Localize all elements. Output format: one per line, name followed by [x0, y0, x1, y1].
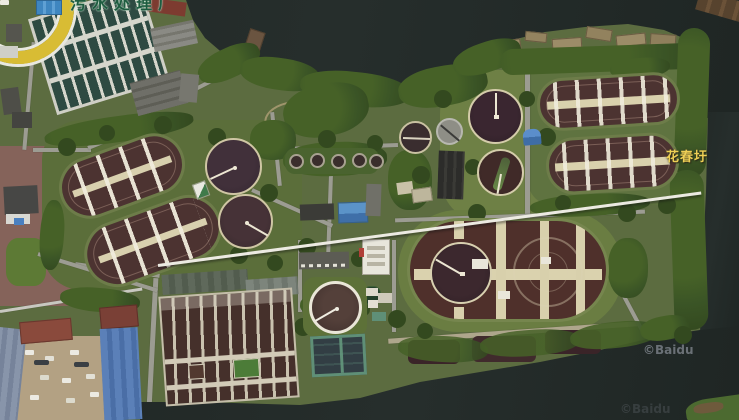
building [299, 252, 349, 270]
building [0, 87, 21, 115]
plant-structure-cluster [366, 288, 392, 324]
basin-structure [541, 257, 551, 264]
vehicles [0, 0, 9, 5]
building [147, 0, 187, 17]
clarifier-tank [468, 89, 523, 144]
road [147, 278, 159, 408]
oxidation-ditch [544, 131, 680, 196]
building [99, 304, 139, 329]
building [6, 24, 22, 42]
basin-structure [498, 291, 510, 299]
ditch-crossbars [553, 74, 672, 128]
building [411, 187, 433, 204]
small-tank [331, 154, 346, 169]
shore-ruins [585, 26, 613, 42]
building [365, 184, 381, 217]
road [33, 148, 91, 152]
clarifier-tank [430, 242, 492, 304]
clarifier-tank [477, 149, 524, 196]
filter-basin-block [158, 287, 299, 406]
small-tank [310, 153, 325, 168]
building [150, 20, 198, 53]
boats [34, 360, 49, 365]
plant-structure-cluster [362, 239, 390, 275]
sludge-basin [310, 334, 367, 378]
small-tank [289, 154, 304, 169]
blue-roof-building [338, 201, 369, 223]
equipment-yard [10, 336, 112, 420]
satellite-map-canvas[interactable]: 污水处理厂 花春圩 ©Baidu ©Baidu [0, 0, 739, 420]
small-tank [369, 154, 384, 169]
oxidation-ditch [536, 71, 682, 133]
ditch-crossbars [562, 134, 673, 191]
blue-pool [36, 0, 62, 15]
tree-cluster [608, 238, 648, 298]
basin-walkway [49, 46, 158, 84]
blue-tarp-structure [522, 128, 541, 146]
clarifier-tank [218, 194, 273, 249]
small-tank [352, 153, 367, 168]
blue-canopy [14, 218, 24, 225]
building [179, 73, 199, 102]
building [0, 46, 18, 58]
clarifier-tank [399, 121, 432, 154]
building [12, 112, 32, 128]
basin-walkway [496, 221, 506, 322]
warehouse-blue [100, 327, 143, 420]
basin-walkway [454, 307, 464, 322]
large-treatment-basin [407, 218, 609, 322]
road [392, 240, 396, 332]
shore-ruins [525, 31, 548, 43]
building [300, 203, 335, 220]
building [437, 151, 465, 200]
clarifier-tank [205, 138, 262, 195]
clarifier-tank [309, 281, 362, 334]
building [3, 185, 38, 215]
basin-structure [472, 259, 488, 269]
building [19, 318, 73, 344]
clarifier-tank [436, 118, 463, 145]
